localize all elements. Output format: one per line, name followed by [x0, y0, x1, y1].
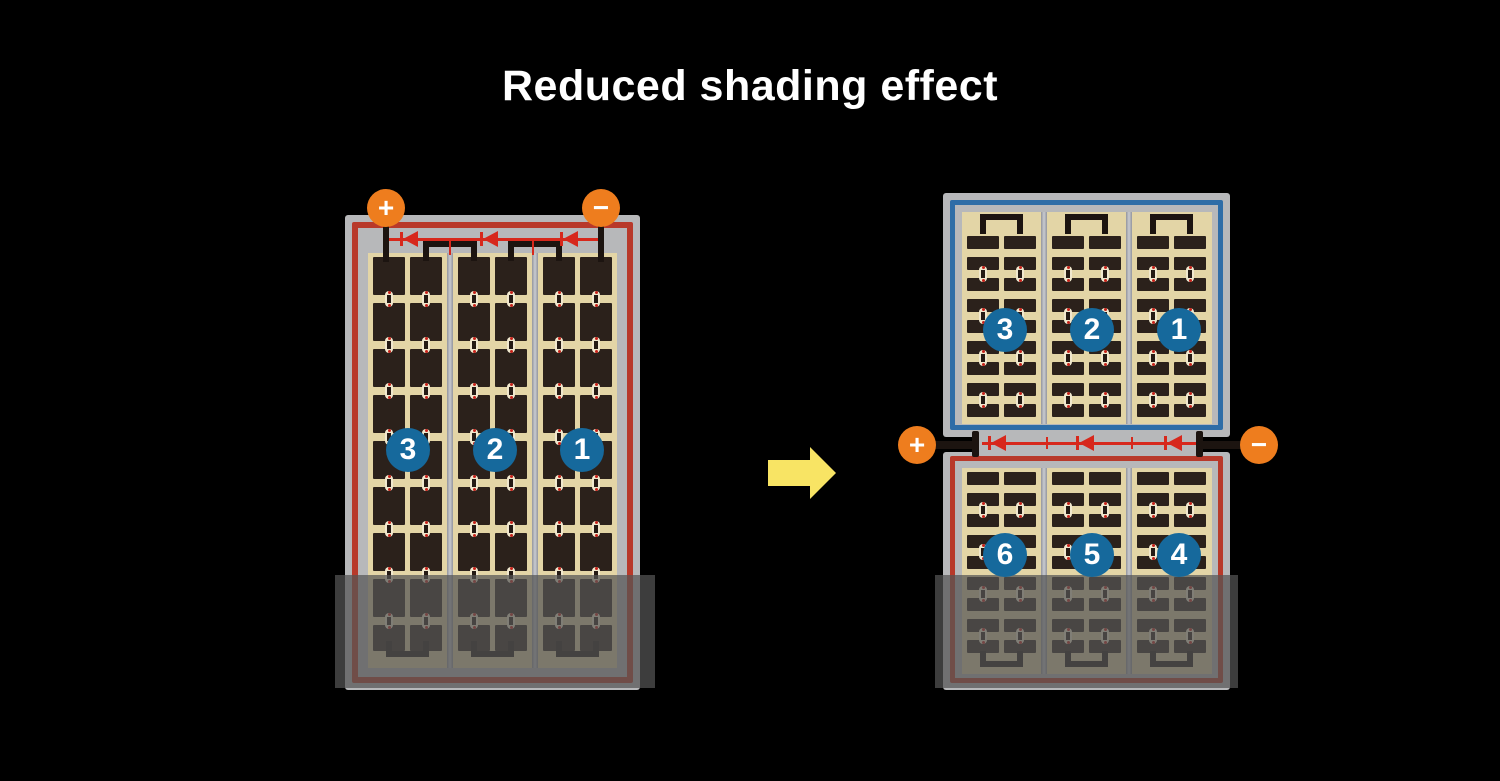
- diode-line-stub: [532, 241, 534, 255]
- string-badge: 4: [1157, 533, 1201, 577]
- solar-cell: [373, 257, 405, 295]
- cell-joint-dot: [385, 521, 393, 537]
- cell-joint-dot: [979, 350, 987, 366]
- cell-joint-dot: [1016, 502, 1024, 518]
- cell-joint-dot: [422, 383, 430, 399]
- cell-joint-dot: [592, 521, 600, 537]
- diode-line-stub: [1046, 437, 1048, 449]
- reduced-shading-diagram: Reduced shading effect + − + − 3 2 1 3 2…: [0, 0, 1500, 781]
- cell-joint-dot: [1149, 544, 1157, 560]
- solar-cell: [1004, 236, 1036, 249]
- cell-joint-dot: [422, 521, 430, 537]
- cell-joint-dot: [1149, 392, 1157, 408]
- solar-cell: [1052, 472, 1084, 485]
- diode-line-stub: [1131, 437, 1133, 449]
- solar-cell: [458, 257, 490, 295]
- diode-line-stub: [449, 241, 451, 255]
- solar-cell: [495, 533, 527, 571]
- solar-cell: [495, 303, 527, 341]
- column-separator: [1126, 212, 1132, 424]
- cell-joint-dot: [592, 337, 600, 353]
- terminal-lead-wire: [383, 224, 389, 262]
- cell-joint-dot: [422, 337, 430, 353]
- cell-joint-dot: [1064, 392, 1072, 408]
- cell-joint-dot: [592, 383, 600, 399]
- cell-joint-dot: [979, 502, 987, 518]
- diode-arrow: [991, 435, 1006, 451]
- string-badge: 2: [1070, 308, 1114, 352]
- cell-joint-dot: [979, 392, 987, 408]
- cell-joint-dot: [1186, 392, 1194, 408]
- cell-joint-dot: [422, 475, 430, 491]
- cell-joint-dot: [1016, 266, 1024, 282]
- solar-cell: [373, 487, 405, 525]
- solar-cell: [543, 303, 575, 341]
- solar-cell: [543, 533, 575, 571]
- cell-joint-dot: [385, 337, 393, 353]
- cell-joint-dot: [1064, 502, 1072, 518]
- solar-cell: [495, 349, 527, 387]
- cell-joint-dot: [470, 521, 478, 537]
- solar-cell: [1004, 472, 1036, 485]
- cell-joint-dot: [507, 291, 515, 307]
- cell-joint-dot: [422, 291, 430, 307]
- cell-joint-dot: [470, 291, 478, 307]
- cell-joint-dot: [470, 475, 478, 491]
- solar-cell: [458, 395, 490, 433]
- solar-cell: [580, 257, 612, 295]
- string-top-connector: [980, 214, 1023, 234]
- string-top-connector: [1065, 214, 1108, 234]
- string-top-connector: [508, 241, 562, 261]
- negative-terminal: −: [1240, 426, 1278, 464]
- cell-joint-dot: [1149, 308, 1157, 324]
- terminal-lead-wire: [930, 441, 974, 449]
- solar-cell: [967, 472, 999, 485]
- cell-joint-dot: [1186, 266, 1194, 282]
- bypass-diode-icon: [1076, 435, 1094, 451]
- shade-overlay: [335, 575, 655, 688]
- cell-joint-dot: [1064, 266, 1072, 282]
- solar-cell: [410, 257, 442, 295]
- solar-cell: [373, 533, 405, 571]
- cell-joint-dot: [555, 337, 563, 353]
- cell-joint-dot: [470, 383, 478, 399]
- cell-joint-dot: [555, 383, 563, 399]
- diode-arrow: [563, 231, 578, 247]
- junction-connector: [972, 431, 979, 457]
- cell-joint-dot: [555, 291, 563, 307]
- solar-cell: [580, 303, 612, 341]
- cell-joint-dot: [507, 475, 515, 491]
- solar-cell: [967, 236, 999, 249]
- cell-joint-dot: [1101, 266, 1109, 282]
- solar-cell: [543, 349, 575, 387]
- solar-cell: [1174, 472, 1206, 485]
- solar-cell: [410, 487, 442, 525]
- cell-joint-dot: [1101, 350, 1109, 366]
- arrow-shaft: [768, 460, 810, 486]
- cell-joint-dot: [1186, 350, 1194, 366]
- column-separator: [1041, 212, 1047, 424]
- terminal-lead-wire: [598, 224, 604, 262]
- solar-cell: [543, 395, 575, 433]
- solar-cell: [410, 303, 442, 341]
- solar-cell: [458, 303, 490, 341]
- shade-overlay: [935, 575, 1238, 688]
- solar-cell: [580, 349, 612, 387]
- cell-joint-dot: [507, 521, 515, 537]
- solar-cell: [495, 257, 527, 295]
- solar-cell: [1052, 236, 1084, 249]
- string-badge: 5: [1070, 533, 1114, 577]
- solar-cell: [1137, 472, 1169, 485]
- solar-cell: [373, 303, 405, 341]
- cell-joint-dot: [1101, 502, 1109, 518]
- cell-joint-dot: [1149, 502, 1157, 518]
- diode-arrow: [483, 231, 498, 247]
- string-badge: 2: [473, 428, 517, 472]
- solar-cell: [410, 349, 442, 387]
- diode-arrow: [1079, 435, 1094, 451]
- string-top-connector: [1150, 214, 1193, 234]
- solar-cell: [1089, 236, 1121, 249]
- solar-cell: [410, 533, 442, 571]
- solar-cell: [580, 487, 612, 525]
- solar-cell: [543, 257, 575, 295]
- solar-cell: [458, 533, 490, 571]
- cell-joint-dot: [385, 291, 393, 307]
- cell-joint-dot: [507, 383, 515, 399]
- solar-cell: [1174, 236, 1206, 249]
- negative-terminal: −: [582, 189, 620, 227]
- bypass-diode-icon: [988, 435, 1006, 451]
- positive-terminal: +: [898, 426, 936, 464]
- cell-joint-dot: [1149, 266, 1157, 282]
- solar-cell: [458, 487, 490, 525]
- string-badge: 3: [983, 308, 1027, 352]
- solar-cell: [373, 395, 405, 433]
- string-badge: 1: [1157, 308, 1201, 352]
- page-title: Reduced shading effect: [0, 62, 1500, 111]
- cell-joint-dot: [1016, 350, 1024, 366]
- cell-joint-dot: [592, 475, 600, 491]
- solar-cell: [1137, 236, 1169, 249]
- junction-connector: [1196, 431, 1203, 457]
- solar-cell: [458, 349, 490, 387]
- solar-cell: [373, 349, 405, 387]
- arrow-head: [810, 447, 836, 499]
- cell-joint-dot: [507, 337, 515, 353]
- diode-arrow: [1167, 435, 1182, 451]
- bypass-diode-icon: [480, 231, 498, 247]
- solar-cell: [580, 533, 612, 571]
- cell-joint-dot: [1149, 350, 1157, 366]
- diode-arrow: [403, 231, 418, 247]
- string-badge: 1: [560, 428, 604, 472]
- string-badge: 6: [983, 533, 1027, 577]
- cell-joint-dot: [979, 266, 987, 282]
- cell-joint-dot: [1101, 392, 1109, 408]
- cell-joint-dot: [555, 521, 563, 537]
- bypass-diode-icon: [400, 231, 418, 247]
- solar-cell: [1089, 472, 1121, 485]
- cell-joint-dot: [385, 475, 393, 491]
- cell-joint-dot: [1064, 350, 1072, 366]
- bypass-diode-icon: [1164, 435, 1182, 451]
- cell-joint-dot: [1186, 502, 1194, 518]
- string-badge: 3: [386, 428, 430, 472]
- solar-cell: [543, 487, 575, 525]
- positive-terminal: +: [367, 189, 405, 227]
- solar-cell: [410, 395, 442, 433]
- solar-cell: [495, 395, 527, 433]
- cell-joint-dot: [1016, 392, 1024, 408]
- cell-joint-dot: [555, 475, 563, 491]
- cell-joint-dot: [592, 291, 600, 307]
- cell-joint-dot: [470, 337, 478, 353]
- bypass-diode-icon: [560, 231, 578, 247]
- cell-joint-dot: [385, 383, 393, 399]
- solar-cell: [495, 487, 527, 525]
